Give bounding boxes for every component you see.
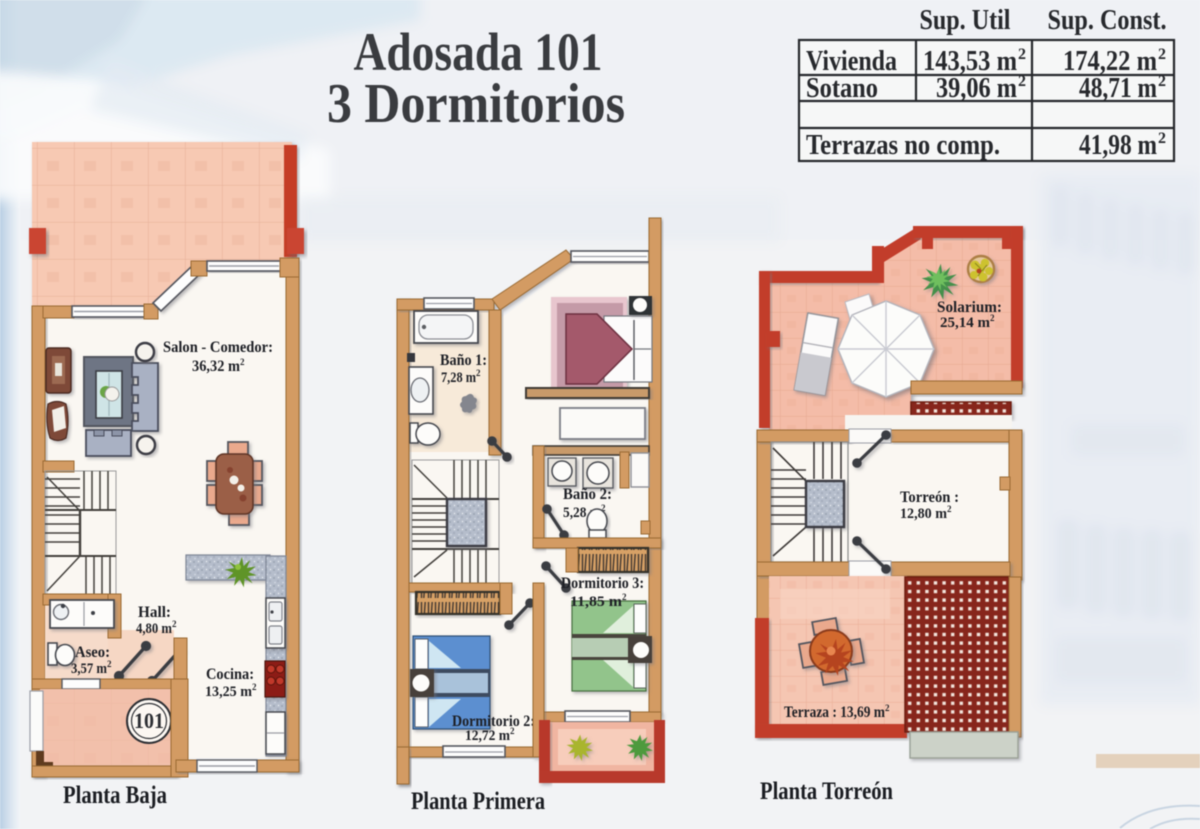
svg-text:Aseo:: Aseo: <box>75 644 110 661</box>
svg-text:2: 2 <box>1018 73 1026 90</box>
svg-text:41,98 m: 41,98 m <box>1079 130 1157 161</box>
svg-text:2: 2 <box>1158 46 1166 63</box>
svg-text:Salon - Comedor:: Salon - Comedor: <box>163 339 273 356</box>
svg-text:2: 2 <box>947 504 952 514</box>
svg-text:13,25 m: 13,25 m <box>205 684 252 700</box>
svg-text:11,85 m: 11,85 m <box>570 594 623 610</box>
svg-text:Planta Torreón: Planta Torreón <box>760 778 893 805</box>
svg-text:Sup. Util: Sup. Util <box>920 5 1011 36</box>
svg-text:Planta Baja: Planta Baja <box>63 782 167 809</box>
svg-text:2: 2 <box>240 357 245 367</box>
svg-text:2: 2 <box>252 682 257 692</box>
svg-text:Baño 2:: Baño 2: <box>563 486 612 503</box>
svg-text:2: 2 <box>1018 46 1026 63</box>
svg-text:4,80 m: 4,80 m <box>136 621 172 637</box>
svg-text:2: 2 <box>107 659 112 669</box>
svg-text:Cocina:: Cocina: <box>206 666 254 683</box>
svg-text:Sotano: Sotano <box>806 73 878 104</box>
svg-text:12,72 m: 12,72 m <box>465 728 510 744</box>
svg-text:2: 2 <box>476 368 481 378</box>
svg-text:2: 2 <box>990 313 995 323</box>
svg-text:3 Dormitorios: 3 Dormitorios <box>327 73 625 135</box>
svg-text:2: 2 <box>885 703 890 713</box>
svg-text:2: 2 <box>172 619 177 629</box>
svg-text:Planta Primera: Planta Primera <box>411 788 545 815</box>
svg-text:2: 2 <box>1158 73 1166 90</box>
svg-text:Terraza : 13,69 m: Terraza : 13,69 m <box>784 704 886 721</box>
svg-text:Terrazas no comp.: Terrazas no comp. <box>806 130 1000 161</box>
svg-text:Baño 1:: Baño 1: <box>440 352 487 369</box>
svg-text:7,28 m: 7,28 m <box>441 370 476 386</box>
svg-text:48,71 m: 48,71 m <box>1079 73 1157 104</box>
svg-text:2: 2 <box>1158 130 1166 147</box>
svg-text:Sup. Const.: Sup. Const. <box>1048 5 1167 36</box>
svg-text:Hall:: Hall: <box>138 604 171 621</box>
svg-text:2: 2 <box>622 592 627 602</box>
svg-text:36,32 m: 36,32 m <box>192 358 241 375</box>
svg-text:2: 2 <box>510 726 515 736</box>
svg-text:25,14 m: 25,14 m <box>940 315 991 331</box>
svg-text:Dormitorio 3:: Dormitorio 3: <box>561 575 644 592</box>
svg-text:3,57 m: 3,57 m <box>71 661 107 677</box>
svg-text:101: 101 <box>134 708 164 733</box>
svg-text:12,80 m: 12,80 m <box>900 506 947 522</box>
svg-text:39,06 m: 39,06 m <box>936 73 1017 104</box>
